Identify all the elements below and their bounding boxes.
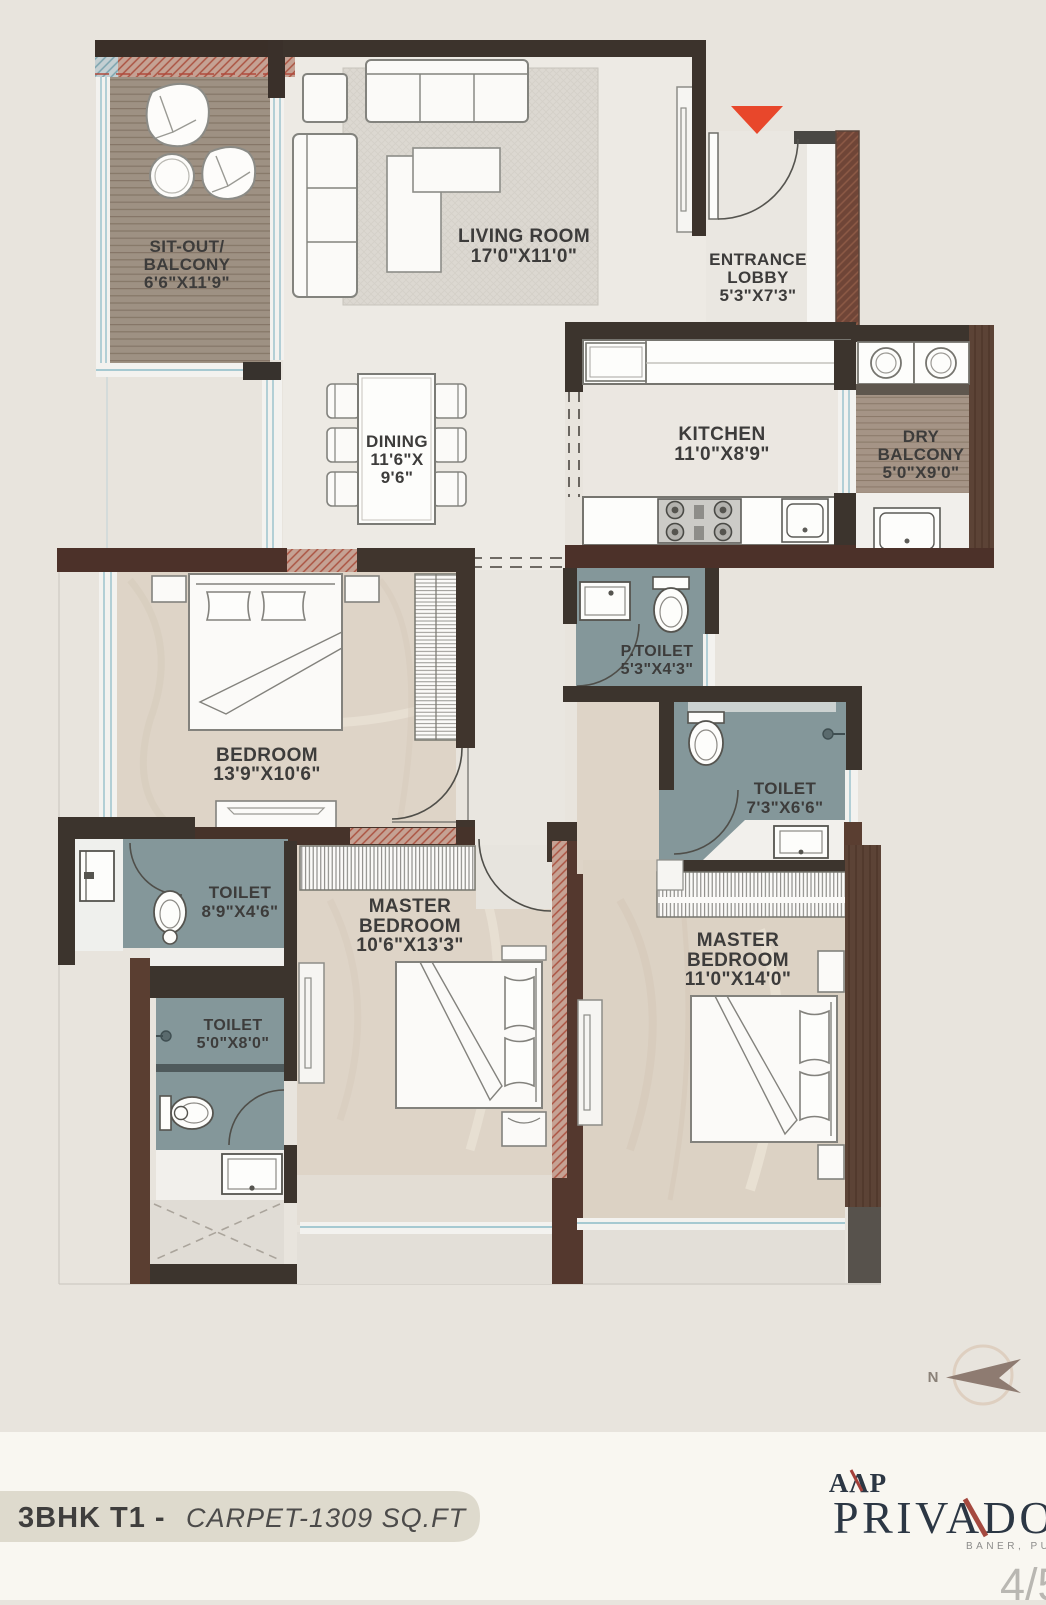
svg-text:SIT-OUT/: SIT-OUT/ [150, 237, 225, 256]
svg-text:5'0"X8'0": 5'0"X8'0" [197, 1035, 270, 1052]
svg-text:3BHK T1 -: 3BHK T1 - [18, 1502, 166, 1534]
svg-text:6'6"X11'9": 6'6"X11'9" [144, 273, 230, 292]
svg-text:ENTRANCE: ENTRANCE [709, 250, 807, 269]
svg-text:P.TOILET: P.TOILET [621, 643, 694, 660]
svg-text:17'0"X11'0": 17'0"X11'0" [471, 246, 577, 267]
svg-text:DRY: DRY [903, 427, 940, 446]
svg-text:PRIVADO: PRIVADO [833, 1492, 1046, 1543]
svg-text:BEDROOM: BEDROOM [216, 745, 318, 766]
svg-text:BEDROOM: BEDROOM [359, 916, 461, 937]
svg-text:11'0"X14'0": 11'0"X14'0" [685, 969, 791, 990]
svg-text:13'9"X10'6": 13'9"X10'6" [213, 764, 321, 785]
svg-text:LIVING ROOM: LIVING ROOM [458, 226, 590, 247]
svg-text:DINING: DINING [366, 432, 428, 451]
svg-text:CARPET-1309 SQ.FT: CARPET-1309 SQ.FT [186, 1503, 468, 1533]
svg-text:LOBBY: LOBBY [727, 268, 789, 287]
svg-text:BALCONY: BALCONY [878, 445, 965, 464]
svg-text:9'6": 9'6" [381, 468, 414, 487]
svg-text:5'3"X4'3": 5'3"X4'3" [621, 661, 694, 678]
svg-text:4/5: 4/5 [1000, 1559, 1046, 1600]
svg-text:5'3"X7'3": 5'3"X7'3" [720, 286, 797, 305]
svg-text:N: N [928, 1369, 939, 1386]
svg-text:BEDROOM: BEDROOM [687, 950, 789, 971]
svg-text:BALCONY: BALCONY [144, 255, 231, 274]
svg-text:BANER, PUN: BANER, PUN [966, 1541, 1046, 1552]
svg-text:TOILET: TOILET [754, 779, 817, 798]
svg-text:5'0"X9'0": 5'0"X9'0" [883, 463, 960, 482]
svg-text:10'6"X13'3": 10'6"X13'3" [356, 935, 464, 956]
svg-text:7'3"X6'6": 7'3"X6'6" [747, 798, 824, 817]
svg-text:8'9"X4'6": 8'9"X4'6" [202, 902, 279, 921]
svg-text:11'0"X8'9": 11'0"X8'9" [674, 444, 770, 465]
svg-text:MASTER: MASTER [697, 930, 780, 951]
svg-text:KITCHEN: KITCHEN [678, 424, 765, 445]
svg-text:TOILET: TOILET [209, 883, 272, 902]
svg-text:11'6"X: 11'6"X [370, 450, 424, 469]
svg-text:MASTER: MASTER [369, 896, 452, 917]
svg-text:TOILET: TOILET [204, 1017, 263, 1034]
